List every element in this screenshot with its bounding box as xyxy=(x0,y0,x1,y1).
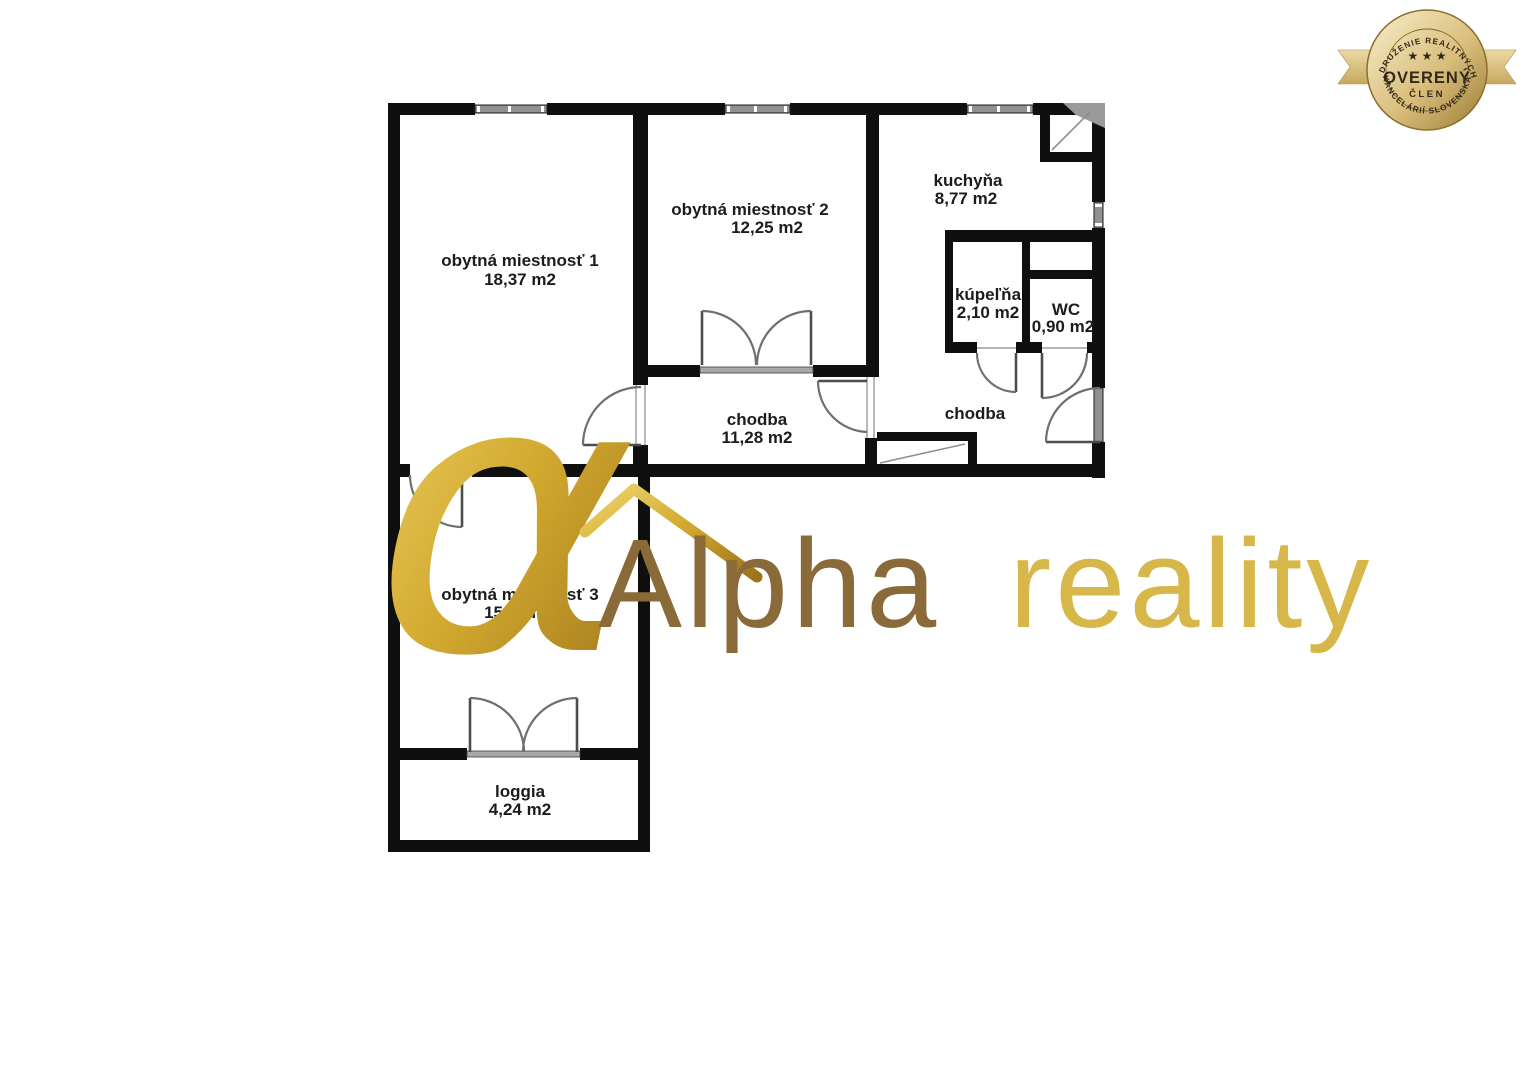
floorplan-page: obytná miestnosť 1 18,37 m2 obytná miest… xyxy=(0,0,1526,1080)
door-bathroom xyxy=(977,348,1016,392)
corner-shaft-diagonal xyxy=(1052,112,1090,150)
label-room1-area: 18,37 m2 xyxy=(484,270,556,289)
badge-arc-top-text: ZDRUŽENIE REALITNÝCH xyxy=(0,0,1479,80)
door-hall-to-hall xyxy=(818,377,874,438)
label-hall-main-area: 11,28 m2 xyxy=(722,428,793,447)
brand-wordmark: Alpha reality xyxy=(598,513,1373,654)
label-bathroom-name: kúpeľňa xyxy=(955,285,1022,304)
badge-title: OVERENÝ xyxy=(1383,68,1471,87)
brand-word1: Alpha xyxy=(598,513,940,654)
brand-word2: reality xyxy=(1009,513,1373,654)
corner-shaft-shading xyxy=(1063,103,1105,128)
window-room2 xyxy=(725,105,790,113)
storage-box-diagonal xyxy=(880,444,965,463)
badge-stars: ★ ★ ★ xyxy=(1408,49,1447,63)
window-kitchen-side xyxy=(1094,202,1103,228)
label-room1-name: obytná miestnosť 1 xyxy=(441,251,598,270)
label-room2-name: obytná miestnosť 2 xyxy=(671,200,828,219)
label-hall-entry-name: chodba xyxy=(945,404,1006,423)
double-door-room2 xyxy=(700,311,813,373)
badge-subtitle: ČLEN xyxy=(1409,88,1445,100)
window-room1 xyxy=(475,105,547,113)
label-hall-main-name: chodba xyxy=(727,410,788,429)
label-loggia-area: 4,24 m2 xyxy=(489,800,551,819)
label-loggia-name: loggia xyxy=(495,782,546,801)
label-kitchen-area: 8,77 m2 xyxy=(935,189,997,208)
label-wc-area: 0,90 m2 xyxy=(1032,317,1094,336)
label-bathroom-area: 2,10 m2 xyxy=(957,303,1019,322)
label-kitchen-name: kuchyňa xyxy=(934,171,1004,190)
window-kitchen xyxy=(967,105,1033,113)
label-room2-area: 12,25 m2 xyxy=(731,218,803,237)
